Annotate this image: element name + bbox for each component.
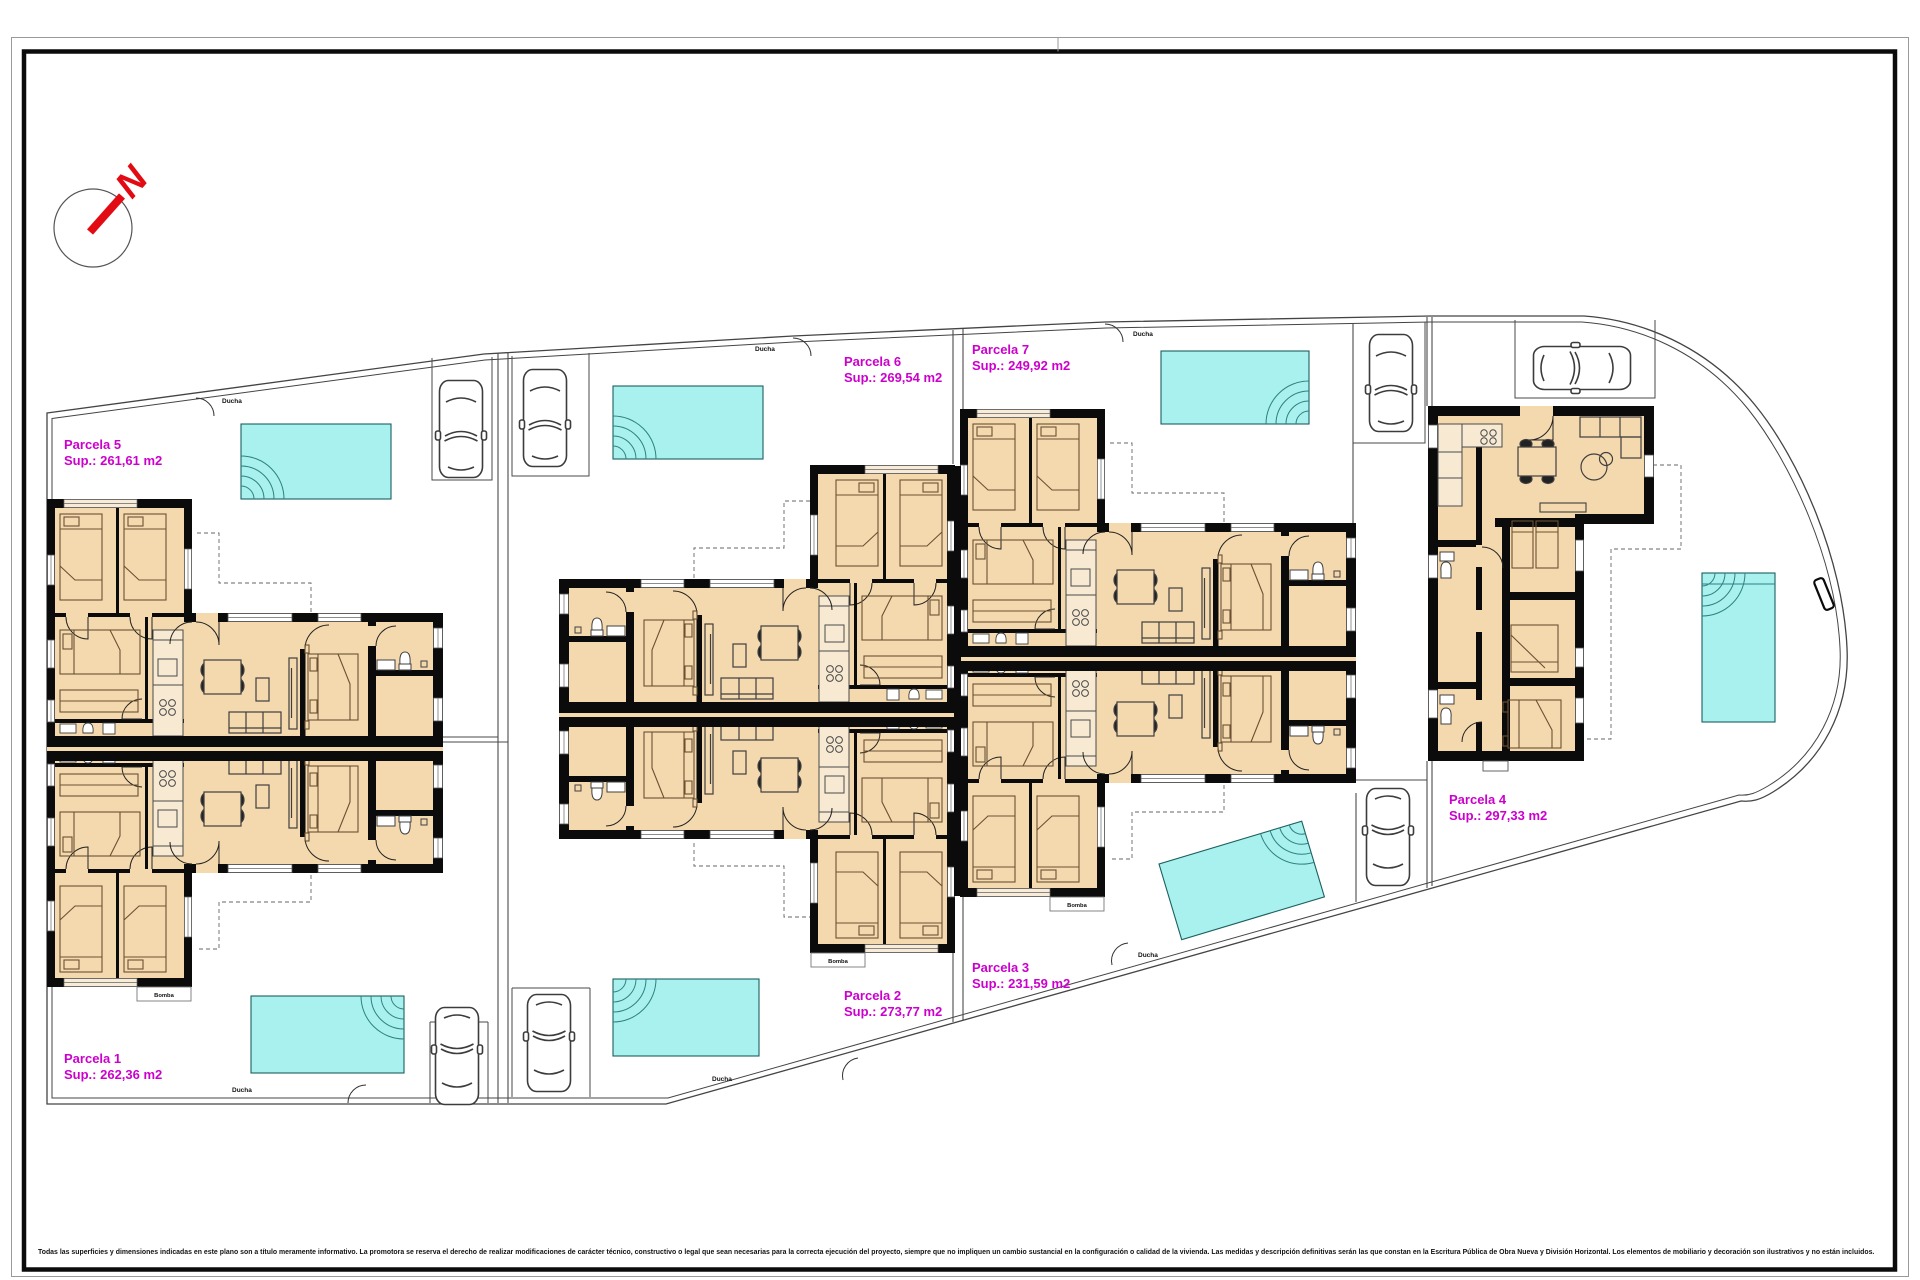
svg-text:Bomba: Bomba	[154, 993, 174, 999]
svg-text:Todas las superficies y dimens: Todas las superficies y dimensiones indi…	[38, 1249, 1874, 1256]
svg-text:Sup.: 262,36 m2: Sup.: 262,36 m2	[64, 1067, 162, 1082]
svg-text:Parcela 3: Parcela 3	[972, 960, 1029, 975]
svg-text:Bomba: Bomba	[828, 959, 848, 965]
svg-text:Sup.: 273,77 m2: Sup.: 273,77 m2	[844, 1004, 942, 1019]
svg-text:Sup.: 297,33 m2: Sup.: 297,33 m2	[1449, 808, 1547, 823]
svg-text:Parcela 1: Parcela 1	[64, 1051, 121, 1066]
svg-text:Sup.: 231,59 m2: Sup.: 231,59 m2	[972, 976, 1070, 991]
svg-text:Parcela 5: Parcela 5	[64, 437, 121, 452]
svg-text:Ducha: Ducha	[1133, 331, 1153, 338]
svg-text:Sup.: 249,92 m2: Sup.: 249,92 m2	[972, 358, 1070, 373]
svg-text:Ducha: Ducha	[755, 346, 775, 353]
svg-text:Ducha: Ducha	[232, 1087, 252, 1094]
svg-text:Sup.: 269,54 m2: Sup.: 269,54 m2	[844, 370, 942, 385]
svg-text:Ducha: Ducha	[222, 398, 242, 405]
svg-text:Sup.: 261,61 m2: Sup.: 261,61 m2	[64, 453, 162, 468]
svg-text:Parcela 4: Parcela 4	[1449, 792, 1507, 807]
svg-text:Ducha: Ducha	[712, 1076, 732, 1083]
svg-text:Parcela 2: Parcela 2	[844, 988, 901, 1003]
svg-text:Parcela 7: Parcela 7	[972, 342, 1029, 357]
svg-text:Ducha: Ducha	[1138, 952, 1158, 959]
svg-text:Bomba: Bomba	[1067, 903, 1087, 909]
svg-text:Parcela 6: Parcela 6	[844, 354, 901, 369]
